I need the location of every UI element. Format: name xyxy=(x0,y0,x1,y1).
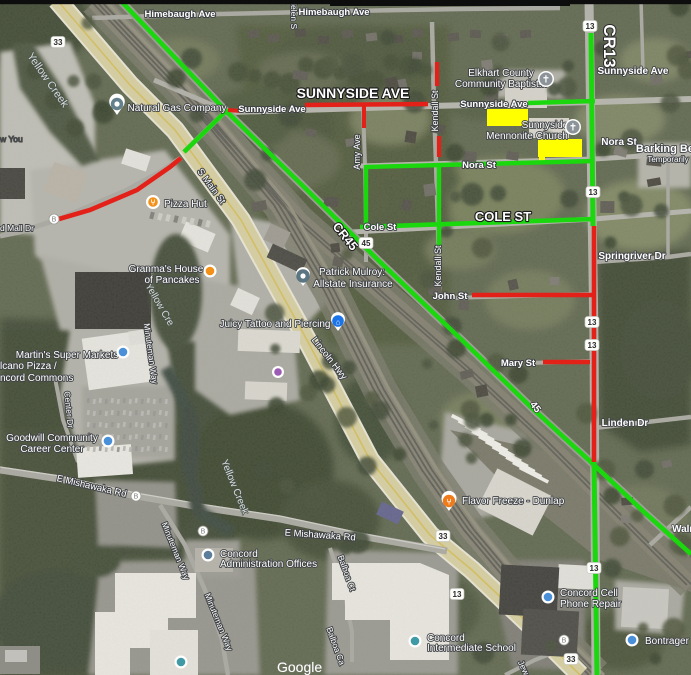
svg-text:lcano Pizza /: lcano Pizza / xyxy=(0,361,57,372)
svg-text:Community Baptist...: Community Baptist... xyxy=(455,79,547,90)
svg-text:of Pancakes: of Pancakes xyxy=(144,275,199,286)
svg-text:Springriver Dr: Springriver Dr xyxy=(598,251,665,262)
svg-text:✝: ✝ xyxy=(542,75,550,86)
svg-text:Phone Repair: Phone Repair xyxy=(560,599,622,610)
svg-text:B: B xyxy=(562,638,567,645)
svg-text:Goodwill Community: Goodwill Community xyxy=(6,433,98,444)
svg-text:Career Center: Career Center xyxy=(20,444,84,455)
svg-text:Mennonite Church: Mennonite Church xyxy=(486,131,568,142)
svg-text:Sunnyside Ave: Sunnyside Ave xyxy=(238,104,305,115)
svg-text:Amy Ave: Amy Ave xyxy=(352,134,362,169)
svg-text:Barking Bea: Barking Bea xyxy=(636,143,691,155)
svg-text:13: 13 xyxy=(586,22,595,31)
svg-text:13: 13 xyxy=(588,318,597,327)
svg-text:w You: w You xyxy=(0,134,23,144)
svg-text:COLE ST: COLE ST xyxy=(475,209,531,224)
svg-text:Temporarily: Temporarily xyxy=(647,155,688,164)
svg-text:John St: John St xyxy=(433,291,469,302)
svg-text:13: 13 xyxy=(589,188,598,197)
svg-text:SUNNYSIDE AVE: SUNNYSIDE AVE xyxy=(297,85,410,101)
svg-text:Nora St: Nora St xyxy=(601,137,637,148)
svg-text:Elkhart County: Elkhart County xyxy=(468,68,534,79)
svg-text:Pizza Hut: Pizza Hut xyxy=(164,199,207,210)
svg-text:13: 13 xyxy=(588,341,597,350)
svg-text:Granma's House: Granma's House xyxy=(129,264,204,275)
svg-text:Google: Google xyxy=(277,659,322,675)
svg-text:Concord Cell: Concord Cell xyxy=(560,588,618,599)
svg-text:Sunnyside: Sunnyside xyxy=(522,120,569,131)
svg-text:33: 33 xyxy=(567,655,576,664)
svg-text:Kendall St: Kendall St xyxy=(430,90,440,132)
svg-text:Allstate Insurance: Allstate Insurance xyxy=(313,279,393,290)
svg-text:Juicy Tattoo and Piercing: Juicy Tattoo and Piercing xyxy=(220,319,331,330)
svg-text:B: B xyxy=(134,494,139,501)
svg-text:Mary St: Mary St xyxy=(501,358,536,369)
svg-text:33: 33 xyxy=(54,38,63,47)
svg-text:⌂: ⌂ xyxy=(336,318,341,327)
svg-text:13: 13 xyxy=(453,590,462,599)
svg-text:Himebaugh Ave: Himebaugh Ave xyxy=(298,7,369,18)
svg-text:Bontrager R: Bontrager R xyxy=(645,636,691,647)
svg-text:Nora St: Nora St xyxy=(462,160,497,171)
svg-text:Administration Offices: Administration Offices xyxy=(220,559,317,570)
svg-text:45: 45 xyxy=(362,239,371,248)
svg-text:Martin's Super Markets: Martin's Super Markets xyxy=(16,350,119,361)
svg-text:d Mall Dr: d Mall Dr xyxy=(0,223,34,233)
svg-text:Natural Gas Company: Natural Gas Company xyxy=(128,103,227,114)
svg-text:Patrick Mulroy:: Patrick Mulroy: xyxy=(319,267,385,278)
svg-text:⑂: ⑂ xyxy=(447,498,452,507)
svg-text:B: B xyxy=(52,217,57,224)
svg-text:Waln: Waln xyxy=(672,524,691,535)
svg-text:13: 13 xyxy=(590,564,599,573)
svg-text:Helen S: Helen S xyxy=(289,0,299,29)
svg-text:⑂: ⑂ xyxy=(150,197,155,207)
svg-text:33: 33 xyxy=(439,532,448,541)
svg-text:Linden Dr: Linden Dr xyxy=(602,418,649,429)
svg-text:Flavor Freeze - Dunlap: Flavor Freeze - Dunlap xyxy=(462,496,565,507)
svg-text:Sunnyside Ave: Sunnyside Ave xyxy=(460,99,527,110)
svg-text:Himebaugh Ave: Himebaugh Ave xyxy=(144,9,215,20)
svg-text:ncord Commons: ncord Commons xyxy=(0,373,73,384)
svg-text:Cole St: Cole St xyxy=(364,222,398,233)
svg-text:✝: ✝ xyxy=(569,123,577,134)
svg-text:CR13: CR13 xyxy=(600,24,619,67)
svg-text:Intermediate School: Intermediate School xyxy=(427,643,516,654)
svg-text:B: B xyxy=(201,529,206,536)
svg-text:Kendall St: Kendall St xyxy=(433,245,443,287)
